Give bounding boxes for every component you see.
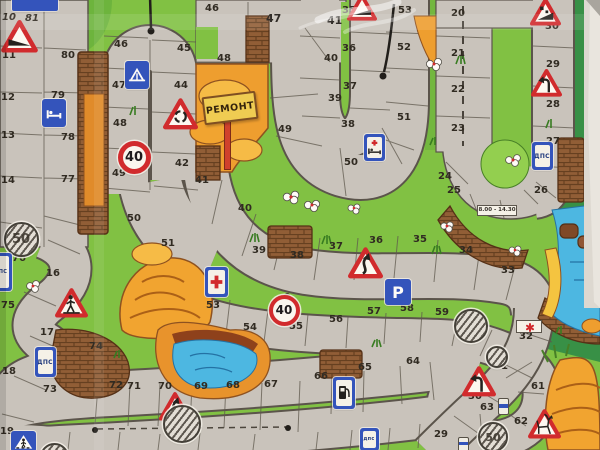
sign-speed-limit-40: 40	[118, 141, 151, 174]
cell-number: 71	[127, 382, 141, 392]
red-cross-icon	[208, 270, 225, 294]
cell-number: 48	[217, 54, 231, 64]
sign-warning-scurve-icon	[348, 247, 383, 279]
bridge-pylon	[458, 437, 469, 450]
sign-pedestrian-crossing-blue	[11, 431, 36, 450]
sign-dps-post: дпс	[360, 428, 379, 450]
sign-warning-slope-down-icon	[1, 20, 38, 53]
cell-number: 16	[46, 269, 60, 279]
hatch-stripes	[164, 406, 200, 442]
cell-number: 49	[278, 125, 292, 135]
sign-end-of-restrictions	[486, 346, 508, 368]
cell-number: 22	[451, 85, 465, 95]
hatch-stripes	[455, 310, 487, 342]
sign-motel	[42, 99, 66, 127]
cell-number: 75	[1, 301, 15, 311]
cell-number: 61	[531, 382, 545, 392]
cell-number: 17	[40, 328, 54, 338]
cell-number: 39	[252, 246, 266, 256]
cell-number: 70	[158, 382, 172, 392]
sign-warning-curve-left-icon	[462, 366, 496, 397]
dps-plate: ПС	[0, 256, 9, 288]
dps-label: ДПС	[535, 153, 550, 160]
cell-number: 54	[243, 323, 257, 333]
speed-limit-value: 40	[125, 150, 143, 165]
cell-number: 56	[329, 315, 343, 325]
sign-end-of-restrictions: 50	[4, 222, 39, 257]
cell-number: 66	[314, 372, 328, 382]
sign-speed-limit-40: 40	[269, 295, 300, 326]
sign-camping	[125, 61, 149, 89]
cell-number: 68	[226, 381, 240, 391]
cell-number: 80	[61, 51, 75, 61]
cell-number: 11	[2, 51, 16, 61]
cell-number: 69	[194, 382, 208, 392]
sign-warning-roundabout-icon	[163, 98, 198, 130]
cell-number: 32	[519, 332, 533, 342]
cell-number: 33	[501, 266, 515, 276]
cell-number: 13	[1, 131, 15, 141]
cell-number: 51	[161, 239, 175, 249]
sign-gas-station	[333, 377, 355, 409]
sign-warning-pedestrian-icon	[55, 288, 88, 318]
cell-number: 37	[329, 242, 343, 252]
remont-sign-label: РЕМОНТ	[205, 100, 254, 117]
cell-number: 51	[397, 113, 411, 123]
cell-number: 58	[400, 304, 414, 314]
sign-warning-rocks-icon	[530, 0, 561, 26]
cell-number: 57	[367, 307, 381, 317]
game-board-photo: РЕМОНТ 108111801279137814771576167517181…	[0, 0, 600, 450]
cell-number: 36	[369, 236, 383, 246]
cell-number: 53	[206, 301, 220, 311]
cell-number: 59	[435, 308, 449, 318]
cell-number: 62	[514, 417, 528, 427]
cell-number: 39	[328, 94, 342, 104]
cell-number: 50	[344, 158, 358, 168]
bridge-pylon	[498, 398, 509, 415]
cell-number: 40	[324, 54, 338, 64]
blue-sign-fragment	[12, 0, 58, 11]
cell-number: 20	[451, 9, 465, 19]
cell-number: 47	[266, 13, 281, 24]
cell-number: 12	[1, 93, 15, 103]
sign-warning-deer-icon	[528, 409, 561, 439]
cell-number: 38	[341, 120, 355, 130]
cell-number: 28	[546, 100, 560, 110]
cell-number: 48	[113, 119, 127, 129]
snowflake-plate	[516, 320, 542, 333]
parking-letter: Р	[392, 283, 404, 302]
cell-number: 23	[451, 124, 465, 134]
cell-number: 46	[205, 4, 219, 14]
sign-parking: Р	[385, 279, 411, 305]
cell-number: 25	[447, 186, 461, 196]
cell-number: 37	[343, 82, 357, 92]
sign-dps-post: ПС	[0, 253, 12, 291]
cell-number: 24	[438, 172, 452, 182]
cell-number: 18	[2, 367, 16, 377]
dps-label: ДПС	[38, 359, 53, 366]
fuel-pump-icon	[336, 380, 352, 406]
hatch-stripes	[5, 223, 38, 256]
cell-number: 14	[1, 176, 15, 186]
dps-label: дпс	[363, 436, 374, 442]
sign-dps-post: ДПС	[35, 347, 56, 377]
cell-number: 41	[327, 15, 342, 26]
cell-number: 74	[89, 342, 103, 352]
cell-number: 63	[480, 403, 494, 413]
pylon-band	[499, 404, 508, 408]
cell-number: 46	[114, 40, 128, 50]
sign-dps-post: ДПС	[532, 142, 553, 170]
cell-number: 35	[413, 235, 427, 245]
cell-number: 29	[434, 430, 448, 440]
cell-number: 52	[397, 43, 411, 53]
cell-number: 26	[534, 186, 548, 196]
sign-warning-curve-left-icon	[531, 69, 562, 97]
cell-number: 41	[195, 176, 209, 186]
dps-label: ПС	[0, 269, 7, 275]
cell-number: 64	[406, 357, 420, 367]
cell-number: 67	[264, 380, 278, 390]
cell-number: 73	[43, 385, 57, 395]
time-plate: 8.00 - 14.30	[477, 205, 517, 216]
cell-number: 50	[127, 214, 141, 224]
cell-number: 21	[451, 49, 465, 59]
cell-number: 38	[290, 251, 304, 261]
sign-warning-slope-up-icon	[347, 0, 377, 21]
dps-plate: ДПС	[535, 145, 550, 167]
cell-number: 34	[459, 246, 473, 256]
sign-hospital	[364, 134, 385, 161]
cell-number: 78	[61, 133, 75, 143]
hatch-stripes	[479, 423, 507, 450]
cell-number: 42	[175, 159, 189, 169]
cell-number: 53	[398, 6, 412, 16]
dps-plate: дпс	[363, 431, 376, 448]
board-terrain	[0, 0, 600, 450]
pylon-band	[459, 442, 468, 445]
cell-number: 40	[238, 204, 252, 214]
sign-end-of-restrictions: 50	[478, 422, 508, 450]
cell-number: 77	[61, 175, 75, 185]
cell-number: 45	[177, 44, 191, 54]
speed-limit-value: 40	[276, 303, 293, 317]
cell-number: 47	[112, 81, 126, 91]
cell-number: 44	[174, 81, 188, 91]
sign-end-of-restrictions	[163, 405, 201, 443]
sign-first-aid	[205, 267, 228, 297]
dps-plate: ДПС	[38, 350, 53, 374]
sign-end-of-restrictions	[454, 309, 488, 343]
cell-number: 72	[109, 381, 123, 391]
cell-number: 65	[358, 363, 372, 373]
hospital-pictogram	[367, 137, 382, 158]
hatch-stripes	[487, 347, 507, 367]
cell-number: 36	[342, 44, 356, 54]
